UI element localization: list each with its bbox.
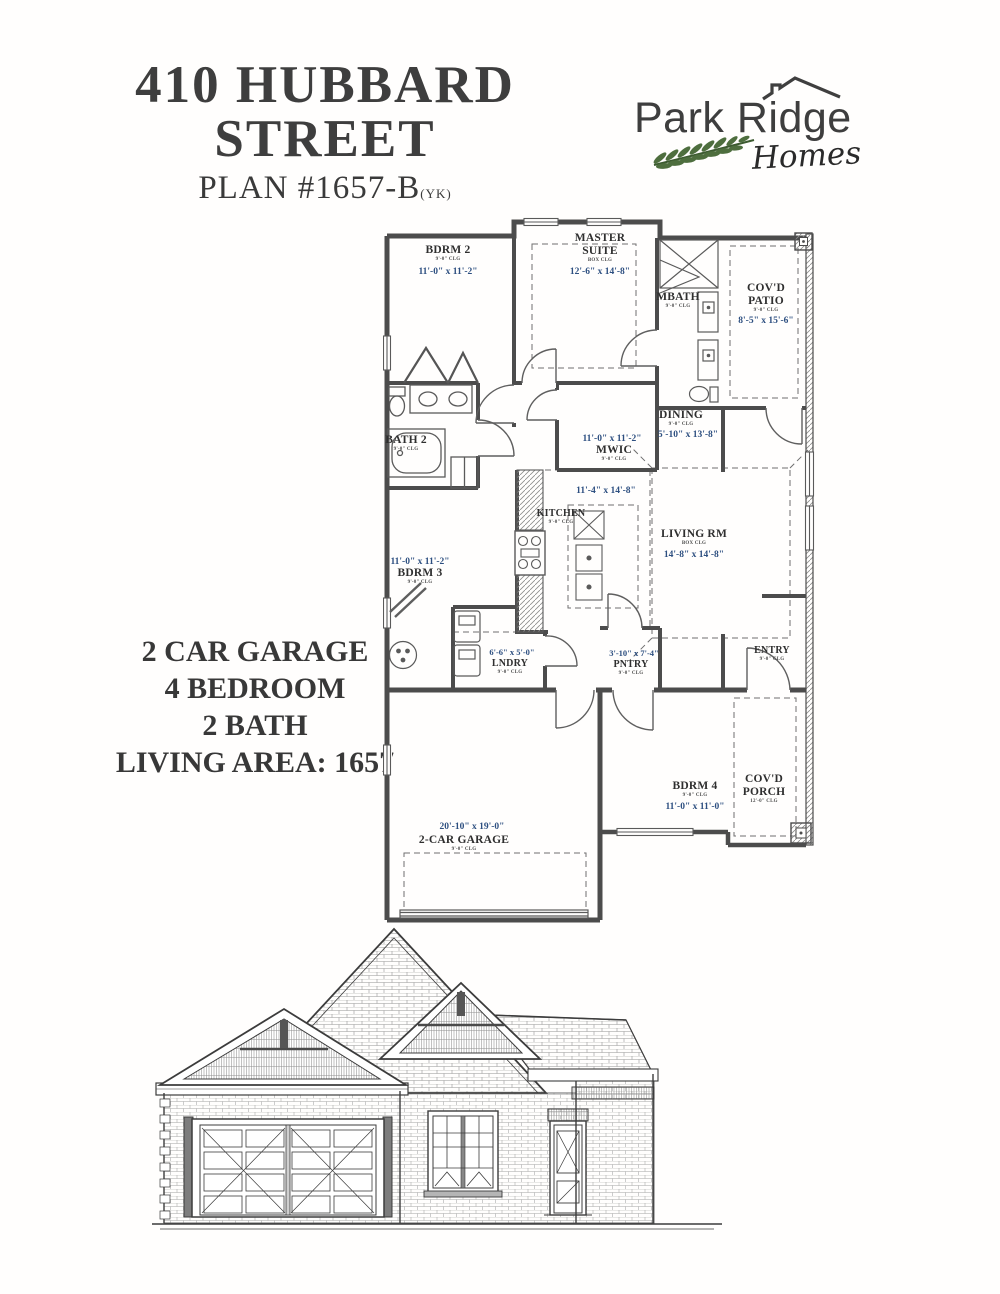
room-dims: 11'-0" x 11'-0" <box>665 802 724 812</box>
room-name: 2-CAR GARAGE <box>419 834 509 846</box>
summary-baths: 2 BATH <box>105 707 405 744</box>
room-label-master-suite: MASTER SUITE BOX CLG 12'-6" x 14'-8" <box>570 232 630 277</box>
room-name: MWIC <box>596 444 632 456</box>
room-clg: 9'-0" CLG <box>549 520 574 525</box>
room-dims: 14'-8" x 14'-8" <box>664 550 724 560</box>
document-page: 410 HUBBARD STREET PLAN #1657-B(YK) Park… <box>0 0 1000 1294</box>
garage-door-opening <box>400 910 588 918</box>
room-label-bdrm3: 11'-0" x 11'-2" BDRM 3 9'-0" CLG <box>390 557 449 585</box>
front-window <box>424 1111 502 1197</box>
mbath-vanity <box>698 340 718 380</box>
room-label-bdrm2: BDRM 2 9'-0" CLG 11'-0" x 11'-2" <box>418 244 477 277</box>
window-sill <box>424 1191 502 1197</box>
room-label-dining: DINING 9'-0" CLG 5'-10" x 13'-8" <box>658 409 718 440</box>
room-clg: 9'-0" CLG <box>602 457 627 462</box>
floor-plan-drawing: BDRM 2 9'-0" CLG 11'-0" x 11'-2" MASTER … <box>383 212 815 924</box>
gable-post <box>280 1020 288 1048</box>
builder-logo: Park Ridge Homes <box>628 68 898 183</box>
ground-line <box>152 1224 722 1229</box>
room-label-pntry: 3'-10" x 7'-4" PNTRY 9'-0" CLG <box>609 648 659 676</box>
mbath-vanity <box>698 292 718 332</box>
room-clg: 12'-0" CLG <box>750 799 777 804</box>
room-name: MBATH <box>656 291 700 303</box>
logo-sub-text: Homes <box>750 135 862 177</box>
trim-band <box>572 1087 654 1099</box>
room-label-lndry: 6'-6" x 5'-0" LNDRY 9'-0" CLG <box>489 647 534 675</box>
room-dims: 12'-6" x 14'-8" <box>570 267 630 277</box>
room-clg: 9'-0" CLG <box>498 670 523 675</box>
page-title: 410 HUBBARD STREET PLAN #1657-B(YK) <box>85 58 565 207</box>
room-clg: BOX CLG <box>682 541 706 546</box>
gable-post <box>457 992 465 1016</box>
room-label-mbath: MBATH 9'-0" CLG <box>656 291 700 309</box>
room-label-entry: ENTRY 9'-0" CLG <box>754 645 790 662</box>
toilet-fixture <box>690 387 709 402</box>
plan-number-suffix: (YK) <box>420 186 451 201</box>
room-name: COV'D <box>745 773 783 785</box>
water-heater-fixture <box>390 642 417 669</box>
room-dims: 3'-10" x 7'-4" <box>609 648 659 658</box>
room-clg: 9'-0" CLG <box>669 422 694 427</box>
street-address-line2: STREET <box>85 112 565 166</box>
room-name: KITCHEN <box>537 508 586 519</box>
room-name: COV'D <box>747 282 785 294</box>
room-dims: 11'-0" x 11'-2" <box>418 267 477 277</box>
room-name: LNDRY <box>492 658 529 669</box>
mbath-fixtures <box>660 240 718 402</box>
kitchen-counter <box>517 575 543 632</box>
logo-brand-text: Park Ridge <box>634 94 852 142</box>
laundry-fixtures <box>390 611 481 676</box>
room-clg: 9'-0" CLG <box>619 671 644 676</box>
room-dims: 6'-6" x 5'-0" <box>489 647 534 657</box>
summary-bedrooms: 4 BEDROOM <box>105 670 405 707</box>
kitchen-counter <box>517 470 543 530</box>
garage-door <box>184 1117 392 1217</box>
room-label-covd-patio: COV'D PATIO 9'-0" CLG 8'-5" x 15'-6" <box>738 282 793 326</box>
room-name: MASTER <box>575 232 626 244</box>
closet-doors-icon <box>404 348 478 383</box>
room-clg: 9'-0" CLG <box>436 257 461 262</box>
room-label-mwic: 11'-0" x 11'-2" MWIC 9'-0" CLG <box>582 434 641 462</box>
room-name: LIVING RM <box>661 528 727 540</box>
right-fascia <box>528 1069 658 1081</box>
room-dims: 8'-5" x 15'-6" <box>738 316 793 326</box>
room-clg: 9'-0" CLG <box>408 580 433 585</box>
door-header <box>548 1109 588 1121</box>
sink-fixture <box>449 392 467 406</box>
room-name: BATH 2 <box>385 434 427 446</box>
room-clg: 9'-0" CLG <box>683 793 708 798</box>
room-dims: 20'-10" x 19'-0" <box>440 822 505 832</box>
room-clg: 9'-0" CLG <box>666 304 691 309</box>
room-dims: 11'-0" x 11'-2" <box>582 434 641 444</box>
room-name: PNTRY <box>613 659 649 670</box>
room-label-covd-porch: COV'D PORCH 12'-0" CLG <box>743 773 786 804</box>
room-clg: BOX CLG <box>588 258 612 263</box>
toilet-tank <box>389 387 405 396</box>
room-name: DINING <box>659 409 703 421</box>
room-dims: 11'-0" x 11'-2" <box>390 557 449 567</box>
room-name: BDRM 3 <box>398 567 443 579</box>
room-name: PATIO <box>748 295 784 307</box>
room-clg: 9'-0" CLG <box>760 657 785 662</box>
room-name: BDRM 2 <box>426 244 471 256</box>
room-label-bdrm4: BDRM 4 9'-0" CLG 11'-0" x 11'-0" <box>665 780 724 812</box>
summary-living-area: LIVING AREA: 1657 <box>105 744 405 781</box>
room-clg: 9'-0" CLG <box>452 847 477 852</box>
room-label-living-rm: LIVING RM BOX CLG 14'-8" x 14'-8" <box>661 528 727 560</box>
sink-fixture <box>419 392 437 406</box>
room-dims: 11'-4" x 14'-8" <box>576 486 636 496</box>
toilet-fixture <box>390 396 405 416</box>
room-name: BDRM 4 <box>673 780 718 792</box>
room-clg: 9'-0" CLG <box>754 308 779 313</box>
street-address-line1: 410 HUBBARD <box>85 58 565 112</box>
room-dims: 5'-10" x 13'-8" <box>658 430 718 440</box>
summary-garage: 2 CAR GARAGE <box>105 633 405 670</box>
plan-number: PLAN #1657-B(YK) <box>85 170 565 207</box>
room-name: PORCH <box>743 786 786 798</box>
toilet-tank <box>710 387 718 402</box>
room-clg: 9'-0" CLG <box>394 447 419 452</box>
room-label-garage: 20'-10" x 19'-0" 2-CAR GARAGE 9'-0" CLG <box>419 822 509 852</box>
house-elevation-drawing <box>148 923 726 1235</box>
plan-summary: 2 CAR GARAGE 4 BEDROOM 2 BATH LIVING ARE… <box>105 633 405 781</box>
dashed-ceiling-lines <box>404 244 808 913</box>
room-name: SUITE <box>582 245 618 257</box>
room-name: ENTRY <box>754 645 790 656</box>
